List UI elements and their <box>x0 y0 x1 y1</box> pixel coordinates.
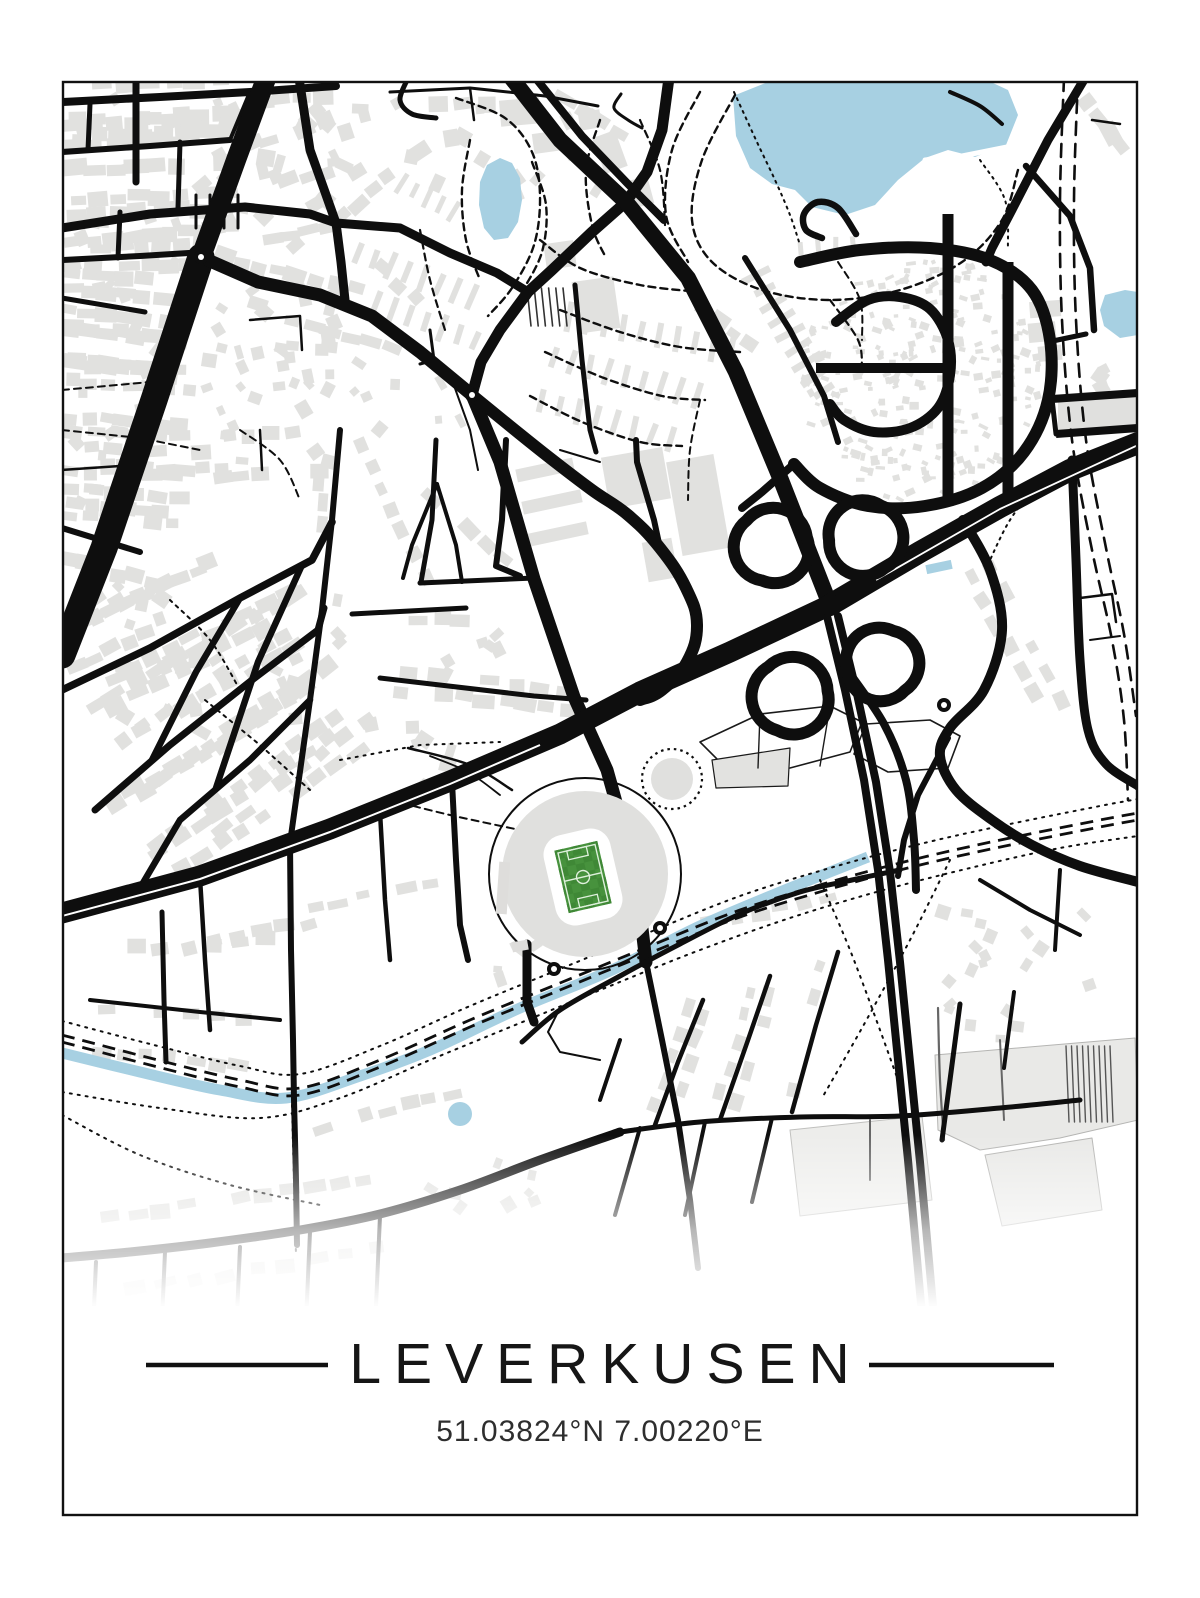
svg-text:51.03824°N 7.00220°E: 51.03824°N 7.00220°E <box>436 1415 764 1448</box>
svg-text:LEVERKUSEN: LEVERKUSEN <box>349 1332 862 1396</box>
